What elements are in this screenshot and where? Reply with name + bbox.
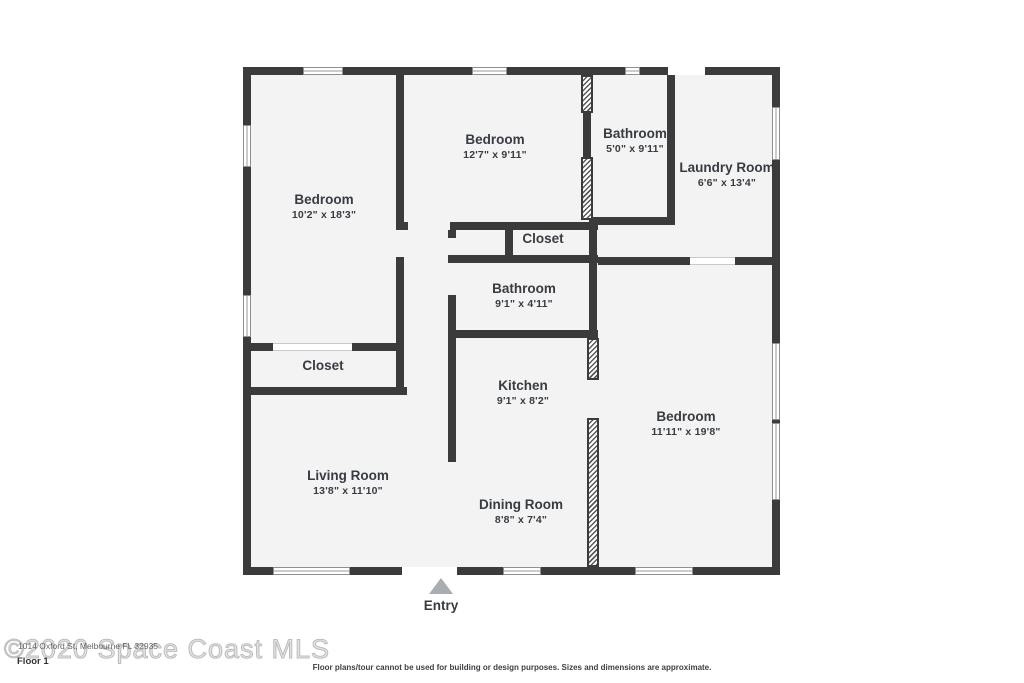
entry-opening xyxy=(402,567,457,575)
wall-segment xyxy=(396,222,408,230)
room-name: Bedroom xyxy=(601,410,771,425)
room-name: Laundry Room xyxy=(642,161,812,176)
room-name: Living Room xyxy=(263,469,433,484)
window-symbol xyxy=(772,343,780,420)
room-dimensions: 9'1" x 8'2" xyxy=(438,396,608,408)
room-label-dining-room: Dining Room 8'8" x 7'4" xyxy=(436,498,606,526)
room-dimensions: 10'2" x 18'3" xyxy=(239,210,409,222)
room-label-closet-middle: Closet xyxy=(458,232,628,247)
room-label-bedroom-right: Bedroom 11'11" x 19'8" xyxy=(601,410,771,438)
room-name: Closet xyxy=(458,232,628,247)
wall-segment xyxy=(448,255,598,263)
room-dimensions: 8'8" x 7'4" xyxy=(436,515,606,527)
entry-label: Entry xyxy=(424,598,459,613)
room-name: Bedroom xyxy=(239,193,409,208)
room-dimensions: 13'8" x 11'10" xyxy=(263,486,433,498)
pocket-door-hatch xyxy=(587,338,599,380)
room-label-kitchen: Kitchen 9'1" x 8'2" xyxy=(438,379,608,407)
wall-segment xyxy=(450,222,598,230)
room-dimensions: 6'6" x 13'4" xyxy=(642,178,812,190)
wall-segment xyxy=(352,343,404,351)
room-label-bathroom-top: Bathroom 5'0" x 9'11" xyxy=(550,127,720,155)
room-name: Dining Room xyxy=(436,498,606,513)
room-label-closet-left: Closet xyxy=(238,359,408,374)
room-name: Kitchen xyxy=(438,379,608,394)
window-symbol xyxy=(303,67,343,75)
room-name: Bathroom xyxy=(439,282,609,297)
room-dimensions: 11'11" x 19'8" xyxy=(601,427,771,439)
room-label-living-room: Living Room 13'8" x 11'10" xyxy=(263,469,433,497)
wall-segment xyxy=(448,330,598,338)
window-symbol xyxy=(635,567,693,575)
wall-segment xyxy=(590,217,675,225)
floor-plan-page: Bedroom 10'2" x 18'3" Bedroom 12'7" x 9'… xyxy=(0,0,1024,683)
pocket-door-hatch xyxy=(581,157,593,220)
entry-arrow-icon xyxy=(429,578,453,594)
room-dimensions: 9'1" x 4'11" xyxy=(439,299,609,311)
floor-plan: Bedroom 10'2" x 18'3" Bedroom 12'7" x 9'… xyxy=(243,67,780,575)
window-symbol xyxy=(772,423,780,500)
window-symbol xyxy=(625,67,640,75)
room-name: Closet xyxy=(238,359,408,374)
room-dimensions: 5'0" x 9'11" xyxy=(550,144,720,156)
wall-segment xyxy=(448,230,456,238)
door-opening xyxy=(273,343,352,351)
window-symbol xyxy=(243,125,251,167)
pocket-door-hatch xyxy=(581,75,593,113)
wall-segment xyxy=(396,257,404,395)
wall-segment xyxy=(251,343,273,351)
wall-segment xyxy=(598,257,690,265)
room-label-laundry-room: Laundry Room 6'6" x 13'4" xyxy=(642,161,812,189)
property-address: 1014 Oxford St, Melbourne FL 32935 xyxy=(18,641,158,651)
window-symbol xyxy=(472,67,507,75)
disclaimer-text: Floor plans/tour cannot be used for buil… xyxy=(0,663,1024,672)
window-symbol xyxy=(772,107,780,160)
room-label-bathroom-middle: Bathroom 9'1" x 4'11" xyxy=(439,282,609,310)
window-symbol xyxy=(243,295,251,337)
wall-segment xyxy=(251,387,407,395)
room-name: Bathroom xyxy=(550,127,720,142)
room-label-bedroom-left: Bedroom 10'2" x 18'3" xyxy=(239,193,409,221)
window-symbol xyxy=(273,567,350,575)
wall-segment xyxy=(735,257,772,265)
window-symbol xyxy=(503,567,541,575)
door-opening xyxy=(668,67,705,75)
door-opening xyxy=(690,257,735,265)
pocket-door-hatch xyxy=(587,418,599,567)
